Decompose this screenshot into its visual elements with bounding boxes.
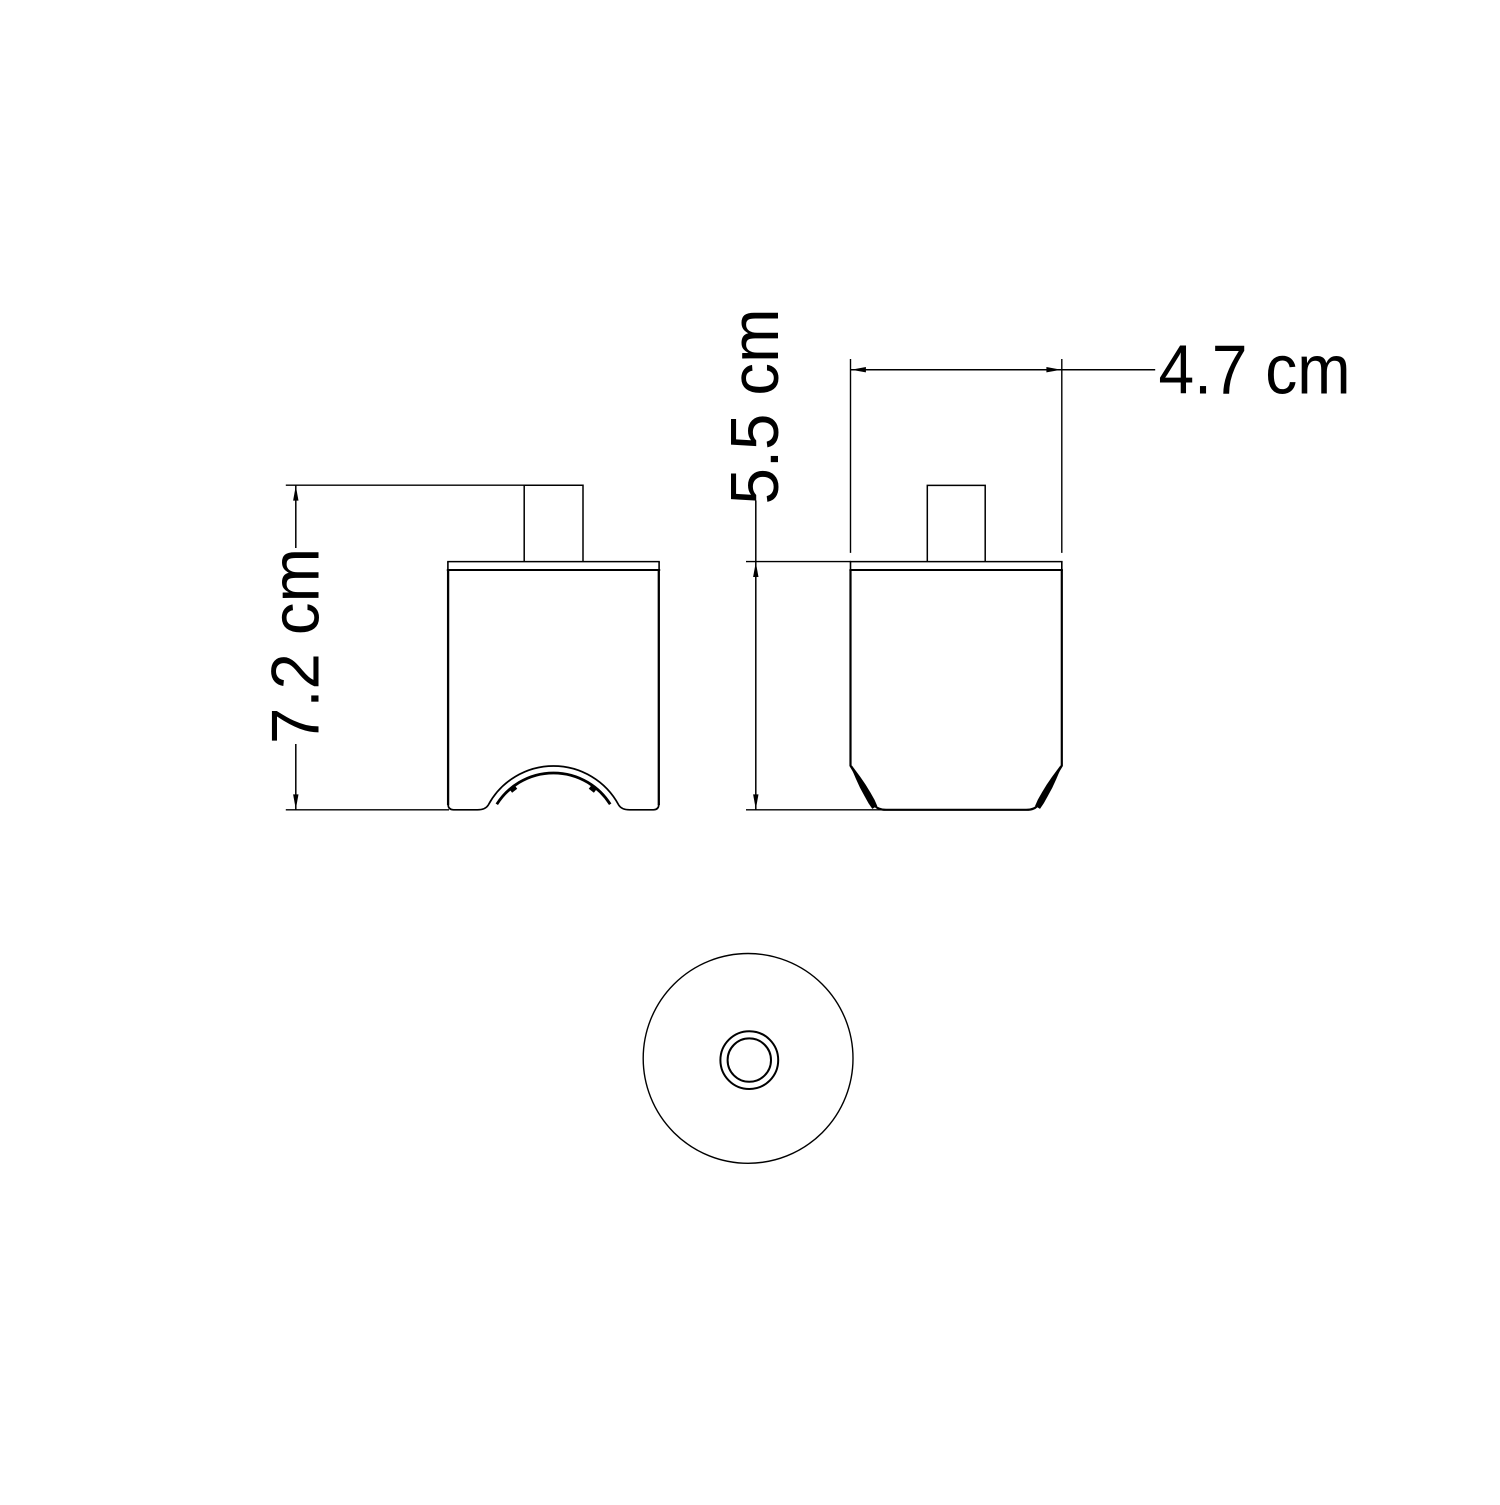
svg-text:4.7 cm: 4.7 cm xyxy=(1159,331,1351,409)
svg-text:5.5 cm: 5.5 cm xyxy=(717,309,793,505)
svg-text:7.2 cm: 7.2 cm xyxy=(258,548,334,744)
